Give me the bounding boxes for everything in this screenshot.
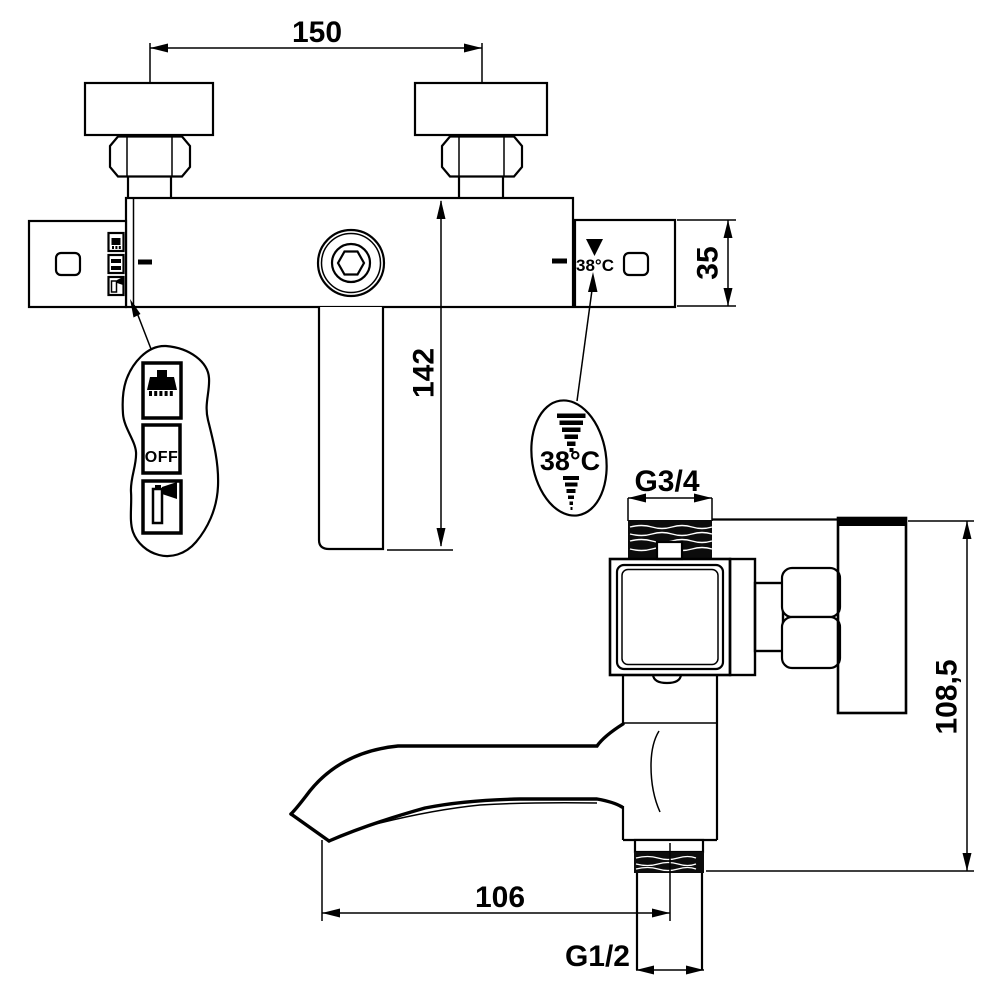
connector-neck — [755, 583, 783, 651]
valve-stem-slot — [657, 542, 682, 559]
front-spout-tube — [319, 307, 383, 549]
side-spout — [291, 724, 660, 841]
front-view: 150 — [29, 16, 736, 556]
spout-body — [623, 675, 717, 840]
dim-142-label: 142 — [408, 348, 441, 398]
mode-icons-strip — [109, 233, 124, 295]
outlet-step — [635, 840, 703, 852]
off-button-label: OFF — [145, 449, 179, 466]
buttons-callout: OFF — [123, 299, 218, 556]
wall-escutcheon — [838, 518, 906, 713]
right-wall-bracket — [415, 83, 547, 135]
dim-106-label: 106 — [475, 881, 525, 914]
dim-outlet-thread: G1/2 — [565, 940, 704, 975]
right-union-nut — [442, 137, 522, 177]
dim-spout-reach: 106 — [322, 840, 670, 921]
cartridge-housing — [610, 559, 730, 683]
outlet-thread — [634, 852, 704, 873]
temp-marking-label: 38°C — [576, 256, 614, 275]
housing-flange — [730, 559, 755, 675]
dim-body-height: 35 — [677, 220, 736, 306]
dim-g34-label: G3/4 — [634, 465, 699, 498]
side-view: G3/4 — [291, 465, 974, 975]
dim-35-label: 35 — [692, 246, 725, 279]
temp-callout-label: 38°C — [540, 446, 600, 476]
dim-150-label: 150 — [292, 16, 342, 49]
technical-drawing-page: 150 — [0, 0, 1000, 1000]
temperature-callout: 38°C — [523, 272, 614, 521]
inlet-stubs — [128, 177, 503, 198]
faucet-dimension-drawing: 150 — [0, 0, 1000, 1000]
left-union-nut — [110, 137, 190, 177]
mini-off-icon — [109, 255, 124, 273]
left-wall-bracket — [85, 83, 213, 135]
wall-union-nut — [782, 568, 840, 668]
inlet-thread — [628, 520, 712, 559]
dim-inlet-thread: G3/4 — [628, 465, 712, 521]
spout-bell-edge — [651, 731, 660, 812]
dim-mounting-spacing: 150 — [150, 16, 482, 83]
dim-108-5-label: 108,5 — [931, 659, 964, 734]
dim-g12-label: G1/2 — [565, 940, 630, 973]
